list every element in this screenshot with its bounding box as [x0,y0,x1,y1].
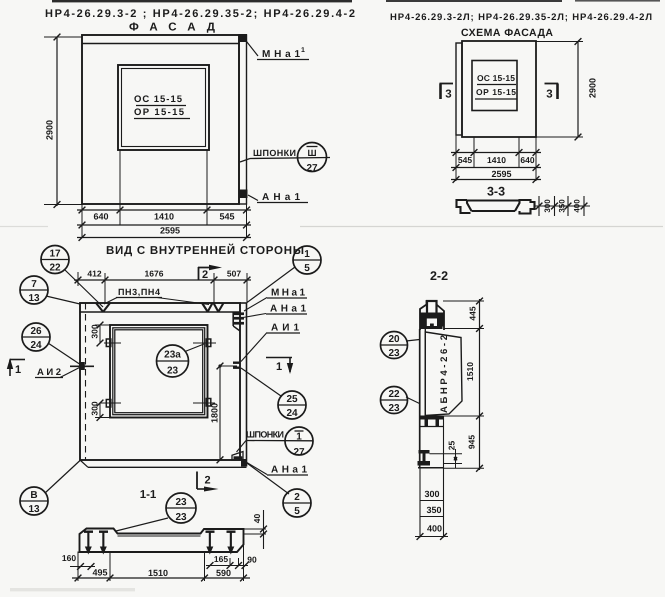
svg-text:22: 22 [388,389,400,400]
svg-text:1510: 1510 [465,362,475,381]
svg-text:3: 3 [546,89,552,101]
svg-text:1: 1 [296,432,302,443]
svg-text:24: 24 [30,340,42,351]
svg-text:2900: 2900 [587,78,597,98]
svg-text:1: 1 [276,361,282,373]
svg-text:27: 27 [293,447,305,458]
svg-text:ШПОНКИ: ШПОНКИ [253,148,296,158]
svg-text:1: 1 [304,249,310,260]
svg-text:13: 13 [28,293,40,304]
svg-text:23: 23 [388,348,400,359]
svg-text:1: 1 [301,47,305,54]
svg-text:2595: 2595 [491,169,511,179]
svg-text:2: 2 [294,492,300,503]
svg-text:23: 23 [388,403,400,414]
svg-text:300: 300 [424,489,439,499]
svg-text:13: 13 [28,504,40,515]
svg-text:2: 2 [204,475,210,487]
svg-text:1: 1 [15,364,21,376]
svg-text:445: 445 [467,306,477,320]
svg-text:МНа1: МНа1 [262,49,300,60]
svg-text:412: 412 [87,269,101,279]
svg-text:300: 300 [89,324,99,338]
svg-text:НР4-26.29.3-2Л; НР4-26.29.35-2: НР4-26.29.3-2Л; НР4-26.29.35-2Л; НР4-26.… [390,12,652,23]
svg-text:350: 350 [557,199,566,213]
svg-text:945: 945 [466,435,476,449]
svg-text:СХЕМА ФАСАДА: СХЕМА ФАСАДА [461,27,553,39]
svg-text:400: 400 [427,524,442,534]
svg-text:545: 545 [219,212,234,222]
svg-text:495: 495 [92,568,107,578]
svg-text:7: 7 [31,279,37,290]
svg-text:20: 20 [388,334,400,345]
svg-text:507: 507 [227,269,241,279]
svg-text:350: 350 [426,505,441,515]
svg-text:545: 545 [458,155,472,165]
svg-text:2: 2 [202,269,208,281]
svg-text:МНа1: МНа1 [271,288,305,299]
svg-text:ШПОНКИ: ШПОНКИ [246,430,284,440]
svg-text:2900: 2900 [44,120,54,140]
svg-text:2-2: 2-2 [430,269,448,283]
svg-text:300: 300 [543,199,552,213]
svg-text:23: 23 [167,366,179,377]
svg-text:22: 22 [49,263,61,274]
svg-text:17: 17 [49,249,61,260]
svg-text:АИ1: АИ1 [271,323,299,334]
svg-text:ОС 15-15: ОС 15-15 [477,73,515,83]
svg-text:ОС 15-15: ОС 15-15 [134,94,183,105]
svg-text:3: 3 [445,89,451,101]
svg-text:24: 24 [286,408,298,419]
svg-text:1676: 1676 [145,269,164,279]
svg-text:165: 165 [214,554,228,564]
svg-text:26: 26 [30,326,42,337]
svg-text:90: 90 [247,555,257,565]
svg-text:АБНР4-26-2: АБНР4-26-2 [439,335,450,413]
svg-text:1410: 1410 [154,212,174,222]
svg-text:В: В [30,490,37,501]
svg-text:300: 300 [89,401,99,415]
svg-text:АИ2: АИ2 [37,367,61,378]
svg-text:ВИД С ВНУТРЕННЕЙ СТОРОНЫ: ВИД С ВНУТРЕННЕЙ СТОРОНЫ [106,243,304,257]
svg-text:23: 23 [175,497,187,508]
svg-text:23а: 23а [164,350,181,361]
svg-text:1800: 1800 [210,403,220,423]
svg-text:640: 640 [93,212,108,222]
svg-text:640: 640 [520,155,534,165]
svg-text:5: 5 [294,506,300,517]
svg-text:160: 160 [62,553,76,563]
svg-text:НР4-26.29.3-2 ; НР4-26.29.35-2: НР4-26.29.3-2 ; НР4-26.29.35-2; НР4-26.2… [45,8,355,20]
svg-text:1-1: 1-1 [140,489,157,501]
svg-text:40: 40 [252,514,262,524]
svg-text:590: 590 [216,568,231,578]
svg-text:3-3: 3-3 [487,185,505,199]
svg-text:2595: 2595 [160,226,180,236]
svg-text:23: 23 [175,512,187,523]
svg-text:25: 25 [447,441,457,451]
svg-text:ОР 15-15: ОР 15-15 [476,87,516,97]
svg-text:1410: 1410 [487,155,506,165]
svg-text:27: 27 [306,163,318,174]
svg-text:Ш: Ш [307,148,316,158]
svg-text:5: 5 [304,263,310,274]
svg-text:1510: 1510 [148,568,168,578]
svg-text:400: 400 [572,199,581,213]
svg-text:ПН3,ПН4: ПН3,ПН4 [118,287,160,297]
svg-text:25: 25 [286,394,298,405]
